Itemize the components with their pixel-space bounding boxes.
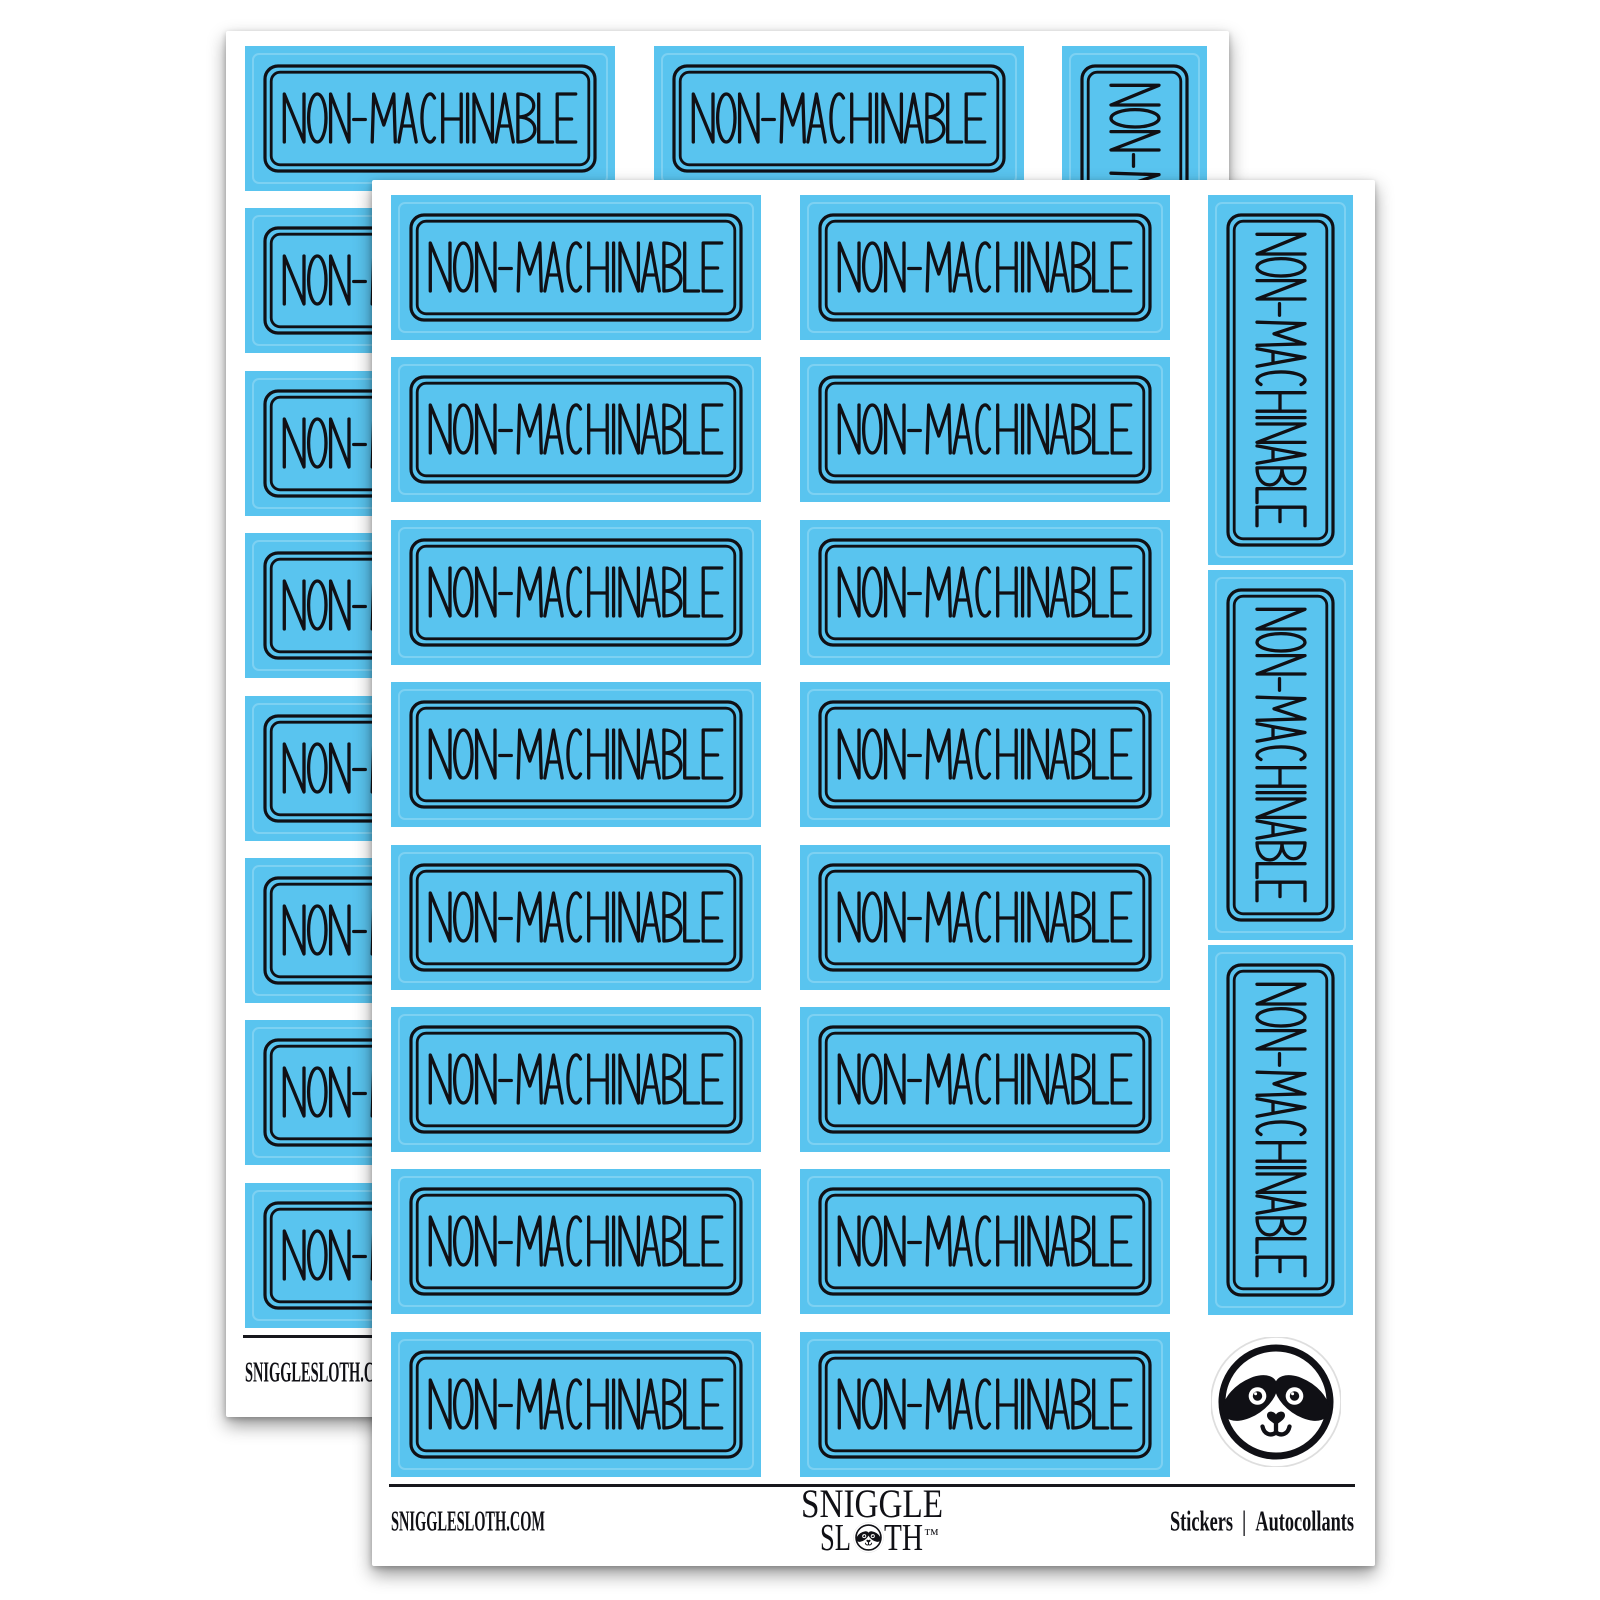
svg-text:SL: SL <box>820 1517 851 1556</box>
svg-text:TH: TH <box>884 1517 923 1556</box>
svg-text:Stickers | Autocollants: Stickers | Autocollants <box>1170 1510 1354 1536</box>
svg-text:™: ™ <box>924 1527 939 1543</box>
svg-text:SNIGGLESLOTH.COM: SNIGGLESLOTH.COM <box>391 1510 545 1536</box>
